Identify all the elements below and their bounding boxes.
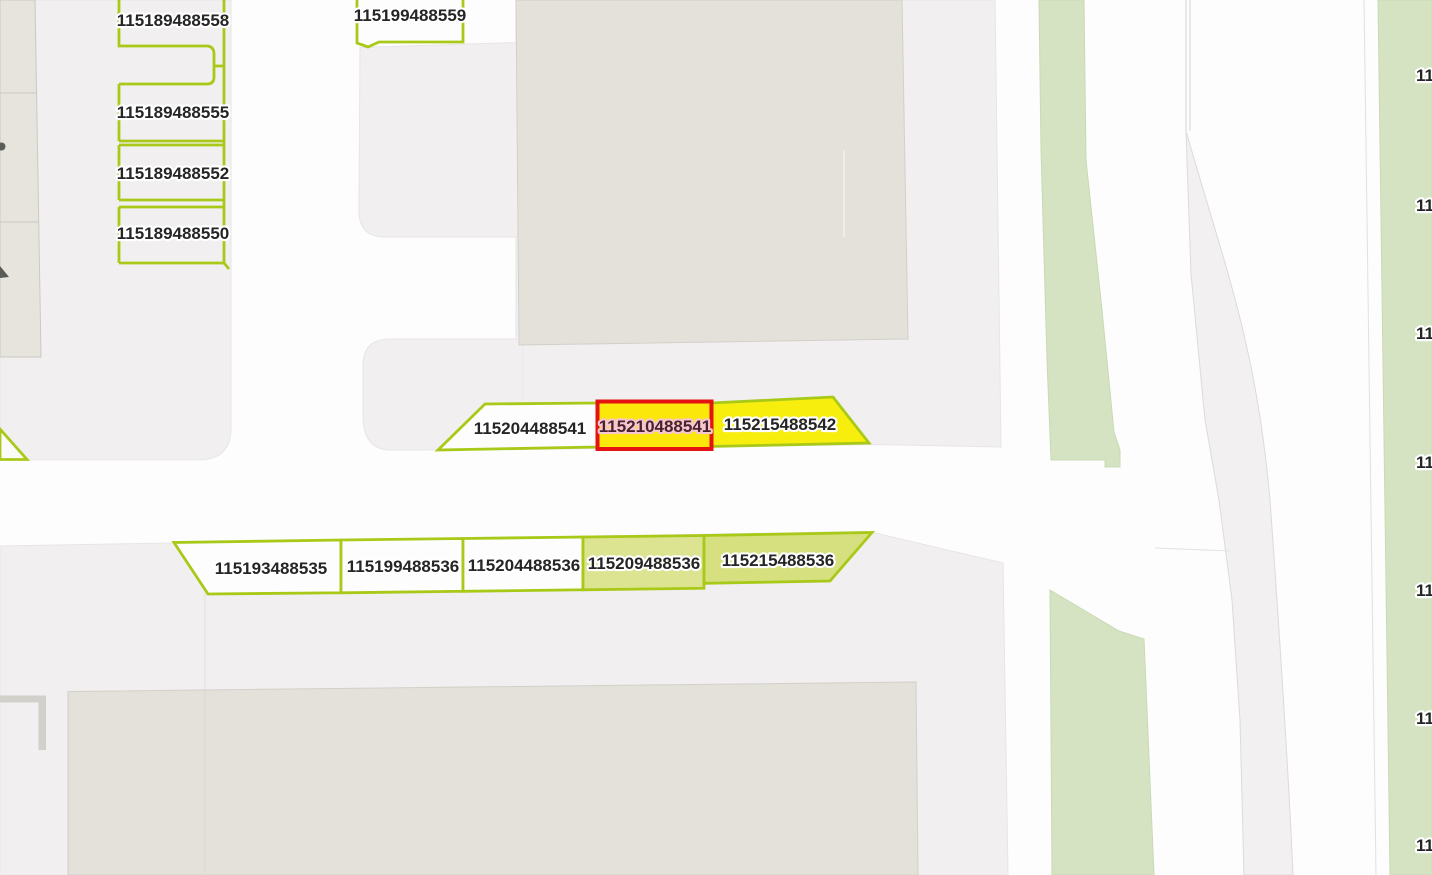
svg-text:115209488536: 115209488536 [588, 554, 701, 573]
svg-text:115215488542: 115215488542 [724, 415, 837, 434]
svg-text:115: 115 [1416, 324, 1432, 343]
svg-text:115210488541: 115210488541 [599, 417, 712, 436]
svg-text:115215488536: 115215488536 [722, 551, 835, 570]
svg-text:115193488535: 115193488535 [215, 559, 328, 578]
svg-text:115: 115 [1416, 66, 1432, 85]
svg-text:115189488555: 115189488555 [117, 103, 230, 122]
svg-text:115: 115 [1416, 709, 1432, 728]
svg-text:115: 115 [1416, 453, 1432, 472]
svg-text:115189488550: 115189488550 [117, 224, 230, 243]
svg-text:115204488541: 115204488541 [474, 419, 587, 438]
svg-text:115: 115 [1416, 196, 1432, 215]
svg-text:115: 115 [1416, 836, 1432, 855]
svg-text:115189488552: 115189488552 [117, 164, 230, 183]
svg-text:115199488536: 115199488536 [347, 557, 460, 576]
svg-text:115189488558: 115189488558 [117, 11, 230, 30]
svg-text:115: 115 [1416, 581, 1432, 600]
svg-text:115204488536: 115204488536 [468, 556, 581, 575]
svg-text:115199488559: 115199488559 [354, 6, 467, 25]
